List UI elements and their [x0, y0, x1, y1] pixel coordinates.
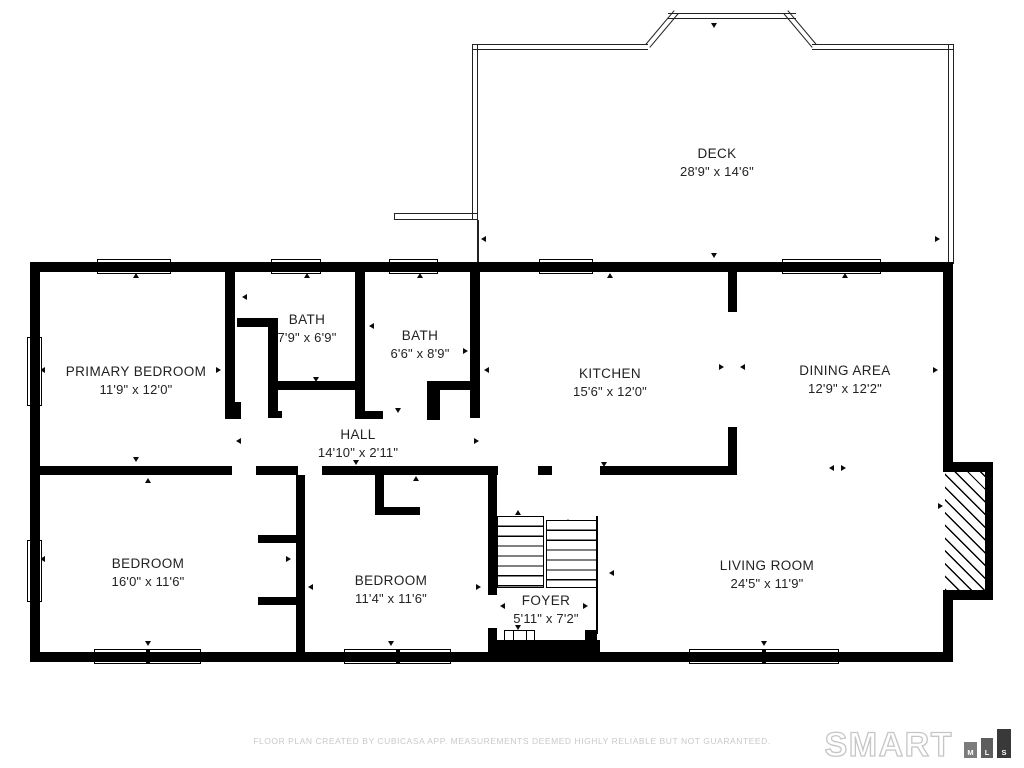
measure-arrow-icon	[719, 364, 724, 370]
room-dims: 14'10" x 2'11"	[318, 445, 398, 460]
measure-arrow-icon	[236, 438, 241, 444]
measure-arrow-icon	[395, 408, 401, 413]
measure-arrow-icon	[711, 23, 717, 28]
measure-arrow-icon	[761, 641, 767, 646]
wall	[225, 272, 235, 407]
room-label-bedroom-1: BEDROOM 16'0" x 11'6"	[112, 556, 185, 589]
measure-arrow-icon	[145, 641, 151, 646]
room-name: PRIMARY BEDROOM	[66, 364, 207, 379]
room-dims: 7'9" x 6'9"	[277, 330, 336, 345]
measure-arrow-icon	[388, 641, 394, 646]
deck-outline	[646, 10, 679, 48]
wall	[355, 411, 383, 419]
deck-outline	[948, 44, 954, 264]
wall	[270, 381, 365, 390]
wall	[296, 475, 305, 652]
fireplace-hatch	[945, 472, 985, 590]
measure-arrow-icon	[740, 364, 745, 370]
measure-arrow-icon	[413, 476, 419, 481]
wall	[470, 272, 480, 418]
room-label-foyer: FOYER 5'11" x 7'2"	[513, 593, 579, 626]
measure-arrow-icon	[474, 438, 479, 444]
mls-bar-l: L	[981, 738, 993, 758]
floor-plan: DECK 28'9" x 14'6" PRIMARY BEDROOM 11'9"…	[0, 0, 1024, 768]
measure-arrow-icon	[935, 236, 940, 242]
room-dims: 11'9" x 12'0"	[66, 382, 207, 397]
wall	[322, 466, 498, 475]
room-label-primary-bedroom: PRIMARY BEDROOM 11'9" x 12'0"	[66, 364, 207, 397]
measure-arrow-icon	[607, 273, 613, 278]
measure-arrow-icon	[515, 510, 521, 515]
measure-arrow-icon	[476, 584, 481, 590]
measure-arrow-icon	[308, 584, 313, 590]
wall	[985, 462, 993, 600]
mls-bars-icon: M L S	[960, 729, 1011, 758]
measure-arrow-icon	[711, 253, 717, 258]
room-dims: 15'6" x 12'0"	[573, 384, 647, 399]
floor-plan-page: DECK 28'9" x 14'6" PRIMARY BEDROOM 11'9"…	[0, 0, 1024, 768]
room-name: FOYER	[513, 593, 579, 608]
room-label-living-room: LIVING ROOM 24'5" x 11'9"	[720, 558, 814, 591]
deck-outline	[472, 44, 478, 220]
room-name: BEDROOM	[355, 573, 428, 588]
room-name: BATH	[277, 312, 336, 327]
room-label-bath-2: BATH 6'6" x 8'9"	[390, 328, 449, 361]
room-dims: 24'5" x 11'9"	[720, 576, 814, 591]
room-dims: 16'0" x 11'6"	[112, 574, 185, 589]
measure-arrow-icon	[463, 348, 468, 354]
measure-arrow-icon	[583, 603, 588, 609]
measure-arrow-icon	[500, 603, 505, 609]
wall	[375, 475, 384, 515]
wall	[256, 466, 298, 475]
mls-bar-s: S	[997, 729, 1011, 758]
measure-arrow-icon	[841, 465, 846, 471]
measure-arrow-icon	[133, 457, 139, 462]
deck-outline	[668, 13, 796, 19]
measure-arrow-icon	[369, 323, 374, 329]
wall	[30, 262, 953, 272]
room-label-bath-1: BATH 7'9" x 6'9"	[277, 312, 336, 345]
wall	[237, 318, 278, 327]
wall	[600, 466, 737, 475]
wall	[30, 262, 40, 662]
room-dims: 28'9" x 14'6"	[680, 164, 754, 179]
room-name: HALL	[318, 427, 398, 442]
smartmls-logo: SMART M L S	[825, 729, 1011, 758]
measure-arrow-icon	[484, 367, 489, 373]
measure-arrow-icon	[609, 570, 614, 576]
wall	[538, 466, 552, 475]
wall	[488, 466, 497, 595]
wall	[30, 652, 953, 662]
room-dims: 6'6" x 8'9"	[390, 346, 449, 361]
wall	[728, 272, 737, 312]
measure-arrow-icon	[353, 460, 359, 465]
wall	[355, 272, 365, 412]
measure-arrow-icon	[242, 294, 247, 300]
room-label-dining-area: DINING AREA 12'9" x 12'2"	[799, 363, 890, 396]
room-label-hall: HALL 14'10" x 2'11"	[318, 427, 398, 460]
deck-outline	[477, 220, 479, 264]
staircase-flight-down	[497, 516, 544, 588]
measure-arrow-icon	[481, 236, 486, 242]
wall	[30, 466, 232, 475]
room-name: DECK	[680, 146, 754, 161]
room-dims: 5'11" x 7'2"	[513, 611, 579, 626]
room-dims: 12'9" x 12'2"	[799, 381, 890, 396]
wall	[943, 262, 953, 467]
measure-arrow-icon	[286, 556, 291, 562]
measure-arrow-icon	[938, 503, 943, 509]
measure-arrow-icon	[829, 465, 834, 471]
room-label-deck: DECK 28'9" x 14'6"	[680, 146, 754, 179]
deck-outline	[812, 44, 954, 50]
room-name: BATH	[390, 328, 449, 343]
room-label-bedroom-2: BEDROOM 11'4" x 11'6"	[355, 573, 428, 606]
wall	[488, 628, 497, 655]
room-name: LIVING ROOM	[720, 558, 814, 573]
deck-outline	[394, 213, 478, 220]
wall	[427, 381, 480, 390]
smart-logo-word: SMART	[825, 732, 953, 758]
room-label-kitchen: KITCHEN 15'6" x 12'0"	[573, 366, 647, 399]
room-name: KITCHEN	[573, 366, 647, 381]
measure-arrow-icon	[145, 478, 151, 483]
deck-outline	[472, 44, 648, 50]
room-name: BEDROOM	[112, 556, 185, 571]
room-name: DINING AREA	[799, 363, 890, 378]
measure-arrow-icon	[216, 367, 221, 373]
mls-bar-m: M	[964, 742, 977, 758]
measure-arrow-icon	[933, 367, 938, 373]
room-dims: 11'4" x 11'6"	[355, 591, 428, 606]
staircase-flight-up	[546, 520, 597, 588]
